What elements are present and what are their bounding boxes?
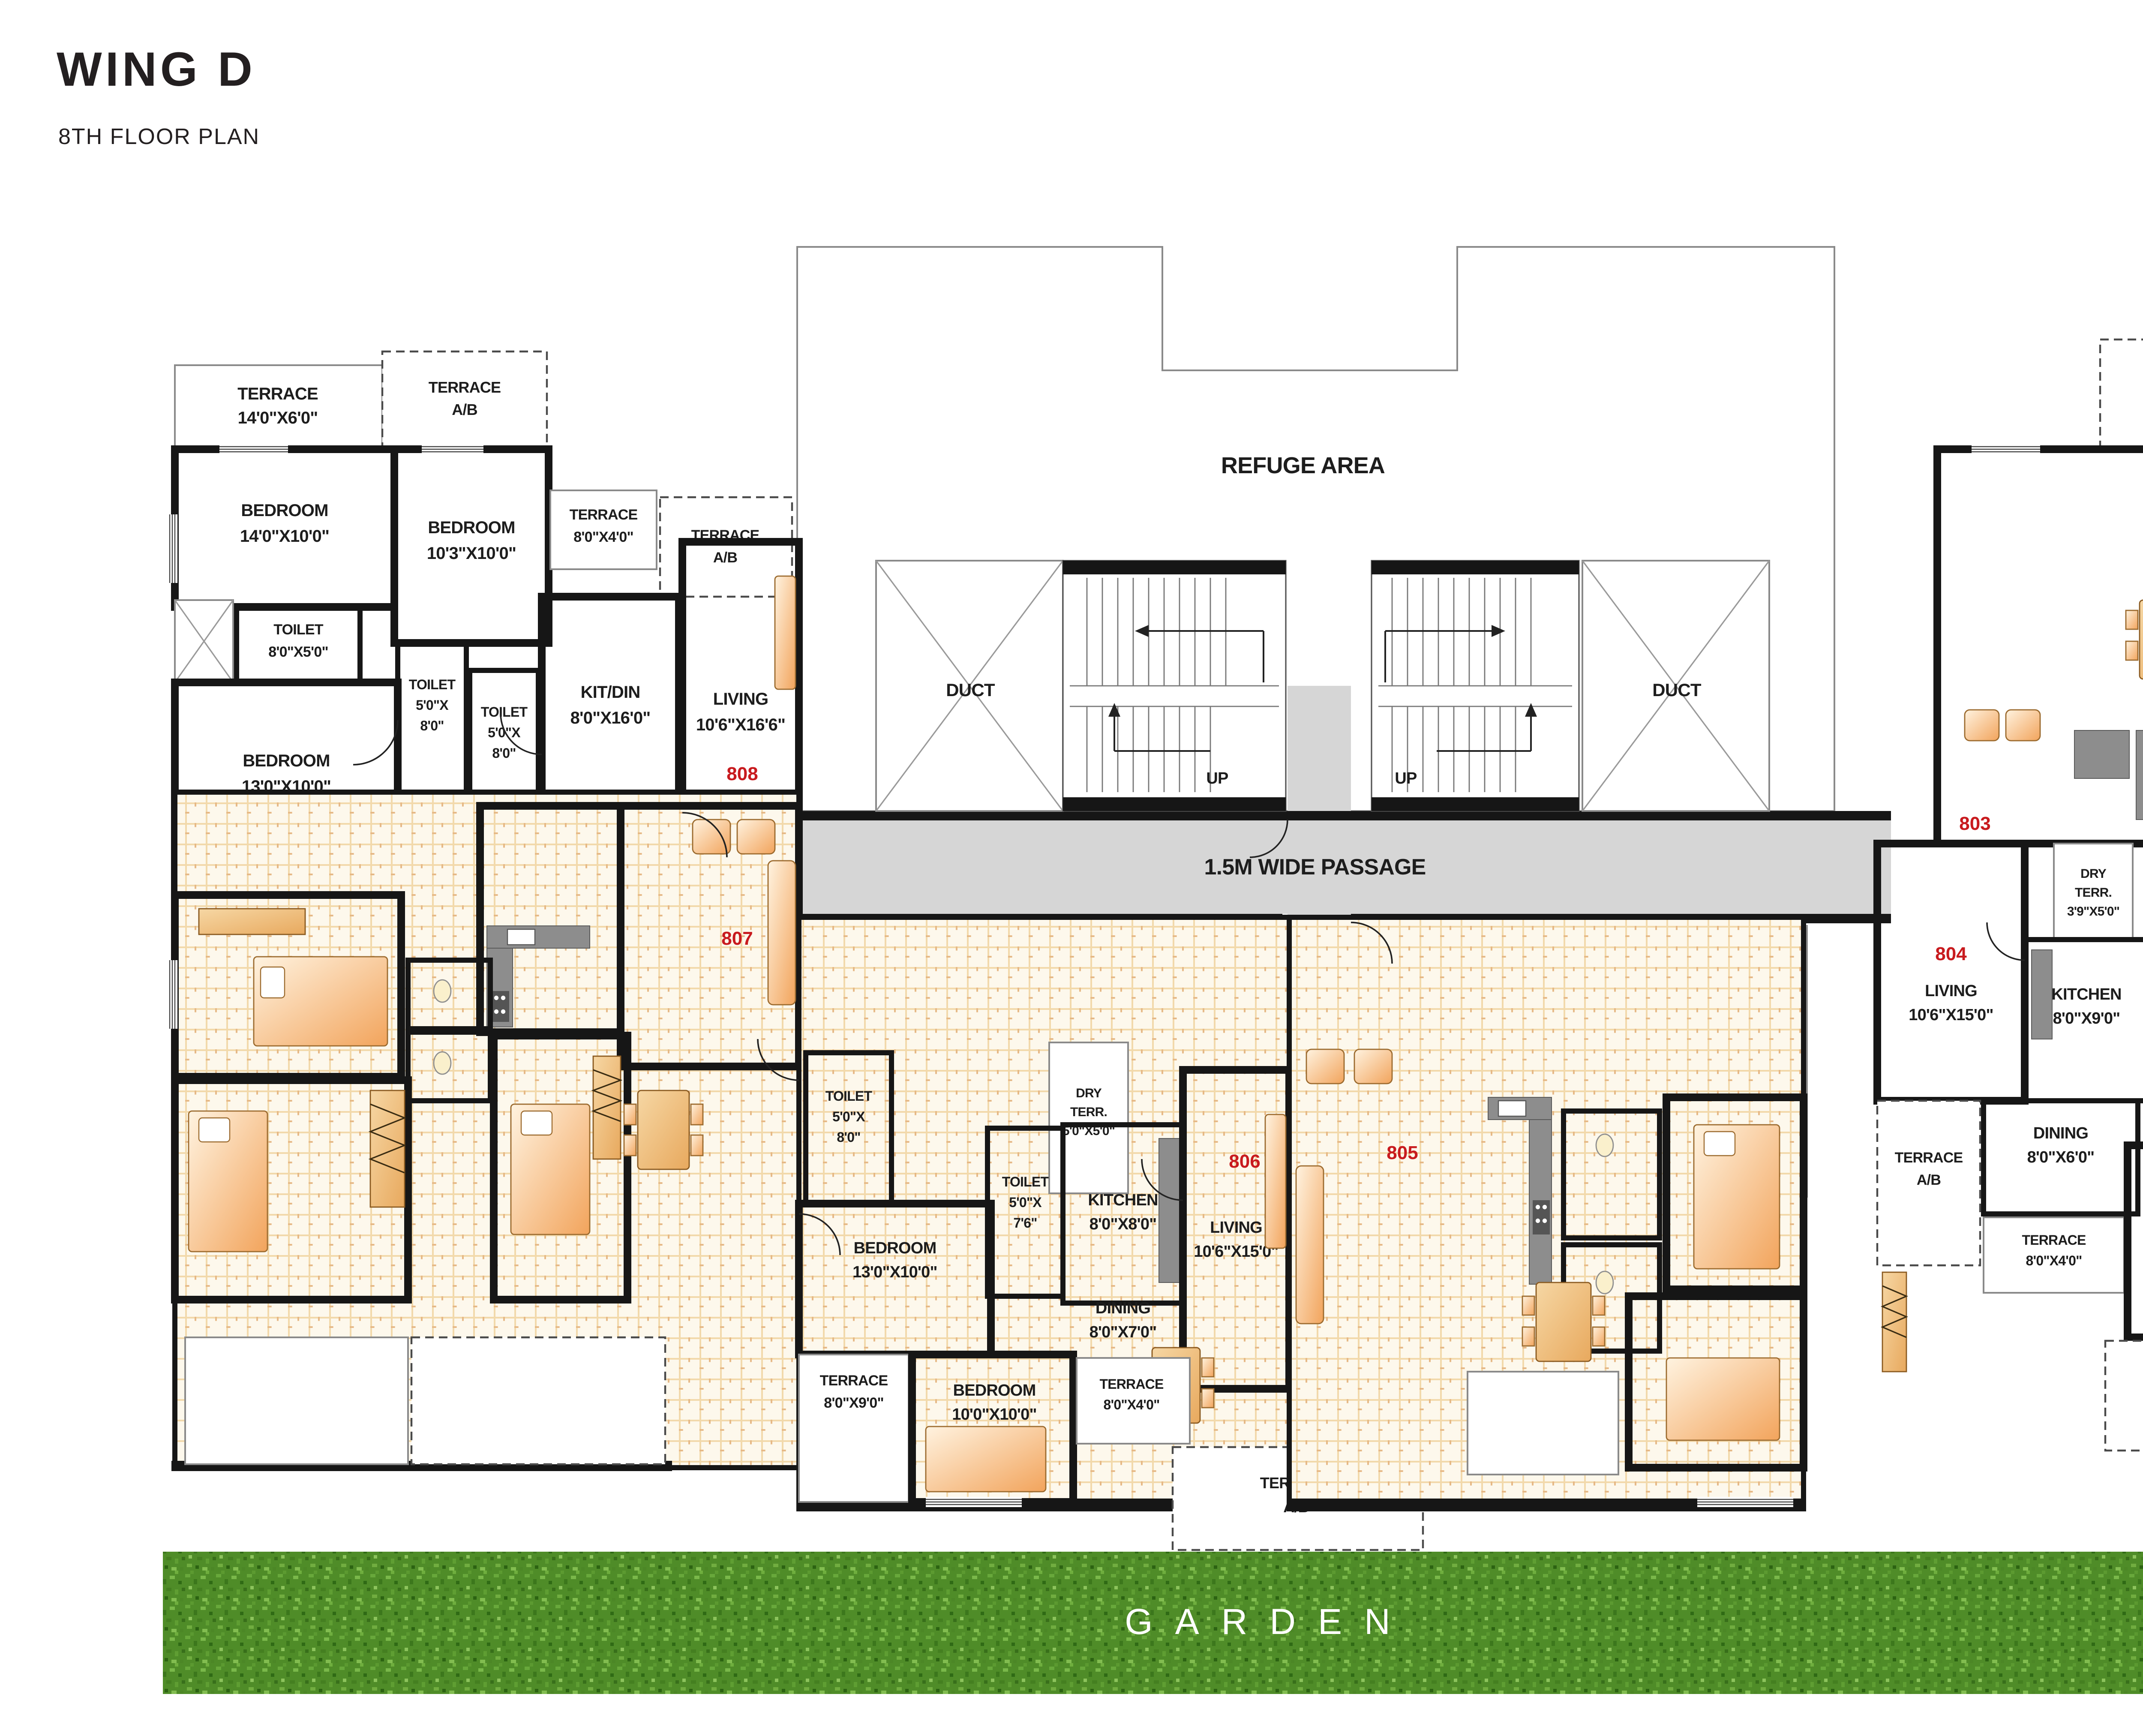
room-label: DINING [1096, 1299, 1150, 1317]
room-size: 8'0"X7'0" [1090, 1323, 1157, 1341]
floor-plan-canvas: WING D 8TH FLOOR PLAN GARDEN REFUGE AREA… [0, 0, 2143, 1736]
page-subtitle: 8TH FLOOR PLAN [58, 124, 260, 149]
unit-number-806: 806 [1229, 1151, 1260, 1172]
room-label: TERR. [2075, 886, 2112, 900]
room-size: 8'0" [420, 718, 444, 733]
room-size: 8'0" [492, 745, 516, 761]
kitchen-counter [1159, 1138, 1180, 1282]
room-size: 5'0"X [832, 1109, 865, 1124]
room-label: TOILET [1002, 1174, 1049, 1189]
pillow [261, 967, 285, 998]
toilet-fixture [1596, 1134, 1613, 1156]
room-label: TOILET [481, 704, 528, 720]
room-label: TOILET [409, 677, 456, 692]
room-label: TOILET [273, 622, 323, 638]
room-size: 10'6"X15'0" [1909, 1006, 1993, 1024]
room-size: 14'0"X6'0" [238, 408, 318, 427]
room-size: A/B [452, 401, 477, 418]
stairs-right: UP [1372, 561, 1579, 811]
room-label: BEDROOM [953, 1382, 1036, 1400]
wardrobe [370, 1090, 405, 1207]
room-size: 8'0"X6'0" [2027, 1148, 2095, 1166]
garden-label: GARDEN [1125, 1601, 1412, 1642]
room-size: 5'0"X [1009, 1195, 1042, 1210]
room-label: KIT/DIN [581, 683, 640, 702]
room-label: DRY [1076, 1086, 1102, 1100]
stairs-left: UP [1063, 561, 1286, 811]
room-size: 8'0"X9'0" [2053, 1009, 2120, 1027]
page-title: WING D [57, 42, 256, 96]
room-terrace-ab [382, 351, 547, 449]
room-label: TERRACE [1099, 1376, 1164, 1392]
up-label: UP [1395, 769, 1417, 787]
room-size: 10'3"X10'0" [427, 544, 516, 563]
armchair [1354, 1049, 1392, 1084]
armchair [1306, 1049, 1344, 1084]
room-size: 8'0"X9'0" [824, 1395, 884, 1411]
room-size: 5'0"X [416, 697, 449, 713]
unit-805: 805 [1289, 917, 1804, 1509]
pillow [199, 1118, 230, 1142]
room-size: 8'0"X8'0" [1090, 1215, 1157, 1233]
garden-strip: GARDEN [163, 1552, 2143, 1694]
toilet-fixture [1596, 1271, 1613, 1294]
duct-label: DUCT [1652, 680, 1702, 700]
room-size: 3'9"X5'0" [2067, 904, 2119, 919]
room-label: BEDROOM [243, 751, 330, 770]
room-label: TERR. [1070, 1105, 1107, 1119]
room-terrace-14x6 [175, 365, 382, 449]
duct-top-right: DUCT [1582, 561, 1769, 811]
room-size: 10'6"X16'6" [696, 715, 785, 734]
room-size: A/B [1917, 1172, 1941, 1188]
unit-number-808: 808 [726, 763, 758, 784]
room-label: LIVING [1925, 982, 1977, 1000]
unit-number-804: 804 [1935, 943, 1967, 964]
kitchen-counter [2136, 730, 2143, 820]
room-label: KITCHEN [2051, 985, 2121, 1003]
refuge-area-label: REFUGE AREA [1221, 453, 1385, 478]
unit-number-807: 807 [721, 928, 753, 949]
armchair [693, 820, 730, 854]
room-size: 8'0"X4'0" [2026, 1253, 2082, 1268]
kitchen-counter [2032, 950, 2052, 1039]
room-size: 8'0"X4'0" [573, 529, 633, 545]
unit-number-803: 803 [1959, 813, 1990, 834]
room-size: 8'0"X16'0" [570, 709, 651, 727]
toilet-fixture [434, 1052, 451, 1074]
room-label: DRY [2080, 867, 2107, 881]
room-label: TERRACE [820, 1373, 888, 1389]
room-label: TOILET [825, 1088, 873, 1104]
room-size: 13'0"X10'0" [852, 1263, 937, 1281]
room-label: TERRACE [570, 507, 638, 523]
unit-807: 807 [171, 792, 799, 1471]
terrace-dashed [2100, 339, 2143, 449]
unit-number-805: 805 [1387, 1142, 1418, 1163]
sofa [775, 576, 795, 689]
room-size: 10'0"X10'0" [952, 1406, 1036, 1424]
room-size: 8'0"X5'0" [268, 644, 328, 660]
room-label: TERRACE [429, 378, 501, 396]
room-label: BEDROOM [241, 501, 328, 520]
sofa [1265, 1114, 1286, 1248]
room-size: 14'0"X10'0" [240, 527, 329, 546]
terrace-hatched [1468, 1372, 1618, 1475]
bed [926, 1427, 1046, 1492]
armchair [737, 820, 775, 854]
room-terrace-ab [2105, 1341, 2143, 1451]
passage-label: 1.5M WIDE PASSAGE [1204, 855, 1426, 880]
pillow [521, 1111, 552, 1135]
room-label: TERRACE [237, 384, 318, 403]
room-label: TERRACE [1895, 1150, 1963, 1166]
room-label: TERRACE [2022, 1232, 2086, 1248]
room-label: LIVING [1210, 1219, 1262, 1237]
duct-top-left: DUCT [876, 561, 1063, 811]
pillow [1704, 1132, 1735, 1156]
room-label: BEDROOM [854, 1239, 936, 1257]
kitchen-counter [2074, 730, 2129, 778]
room-size: 7'6" [1013, 1215, 1037, 1231]
sofa [768, 861, 795, 1005]
room-size: 5'0"X [488, 725, 521, 740]
room-label: DINING [2033, 1124, 2088, 1142]
bed [1666, 1358, 1780, 1440]
up-label: UP [1206, 769, 1228, 787]
room-size: A/B [713, 550, 737, 566]
dresser [199, 909, 305, 934]
toilet-fixture [434, 980, 451, 1002]
room-size: 8'0" [837, 1129, 860, 1145]
sofa [1296, 1166, 1324, 1324]
terrace-hatched [185, 1337, 408, 1464]
room-size: 8'0"X4'0" [1104, 1397, 1160, 1412]
terrace-ab-unlabeled [411, 1337, 665, 1464]
room-label: KITCHEN [1088, 1191, 1158, 1209]
room-label: BEDROOM [428, 518, 515, 537]
duct-label: DUCT [946, 680, 995, 700]
room-label: LIVING [713, 690, 768, 709]
armchair [2006, 710, 2040, 741]
armchair [1965, 710, 1999, 741]
